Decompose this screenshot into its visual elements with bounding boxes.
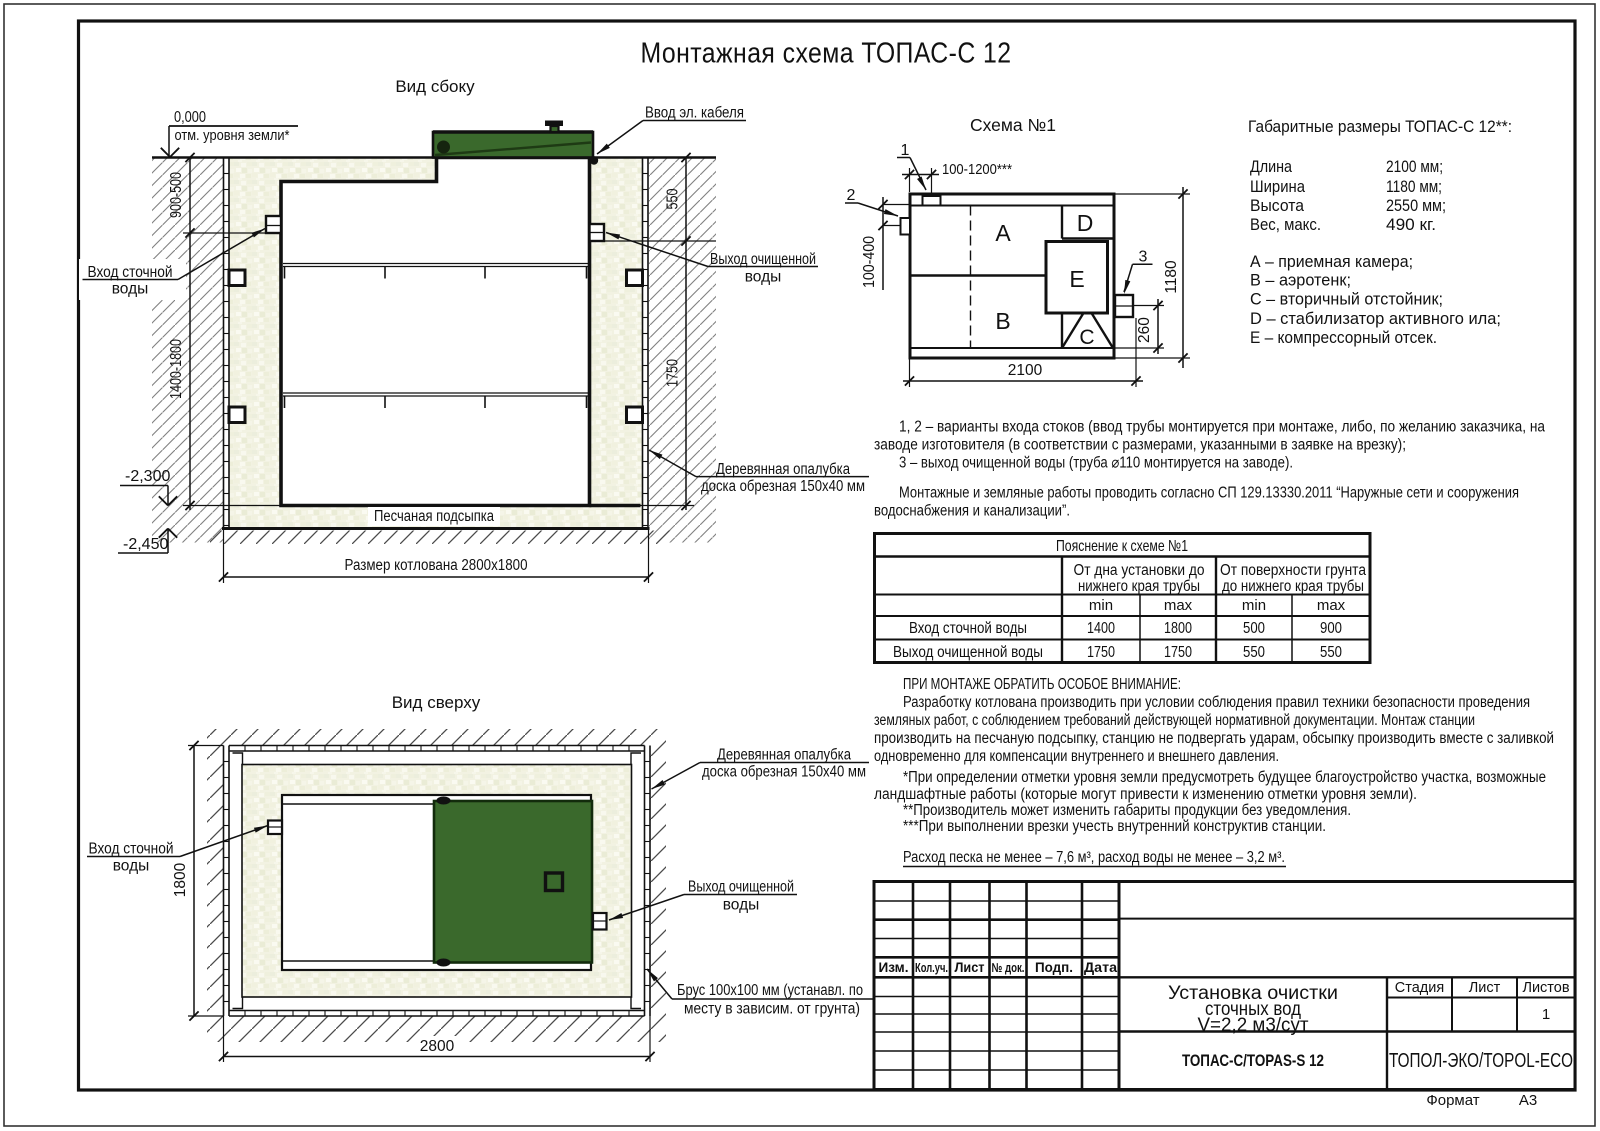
svg-text:Подп.: Подп. [1035, 960, 1073, 975]
svg-text:водоснабжения и канализации”.: водоснабжения и канализации”. [874, 503, 1070, 520]
svg-text:min: min [1242, 597, 1266, 614]
svg-text:воды: воды [723, 897, 760, 914]
svg-text:земляных работ, с соблюдением: земляных работ, с соблюдением требований… [874, 712, 1475, 729]
svg-text:Схема №1: Схема №1 [970, 115, 1056, 135]
svg-text:1, 2 – варианты входа стоков: 1, 2 – варианты входа стоков (ввод трубы… [899, 419, 1545, 436]
svg-text:900-500: 900-500 [168, 172, 185, 218]
svg-text:В – аэротенк;: В – аэротенк; [1250, 271, 1351, 290]
svg-text:E: E [1069, 266, 1084, 292]
svg-text:max: max [1164, 597, 1193, 614]
svg-text:490 кг.: 490 кг. [1386, 215, 1436, 234]
svg-text:Брус 100х100 мм (устанавл. по: Брус 100х100 мм (устанавл. по [677, 982, 863, 999]
svg-text:производить на песчаную подсып: производить на песчаную подсыпку, станци… [874, 730, 1554, 747]
svg-text:Ввод эл. кабеля: Ввод эл. кабеля [645, 105, 744, 122]
svg-text:500: 500 [1243, 620, 1265, 637]
svg-text:ПРИ МОНТАЖЕ ОБРАТИТЬ ОСОБОЕ ВН: ПРИ МОНТАЖЕ ОБРАТИТЬ ОСОБОЕ ВНИМАНИЕ: [903, 676, 1181, 693]
svg-text:Размер котлована 2800х1800: Размер котлована 2800х1800 [345, 557, 528, 574]
svg-text:260: 260 [1136, 317, 1153, 343]
svg-text:Песчаная подсыпка: Песчаная подсыпка [374, 508, 494, 525]
svg-text:Вход сточной: Вход сточной [89, 841, 174, 858]
svg-text:воды: воды [112, 281, 149, 298]
svg-text:550: 550 [1243, 644, 1265, 661]
svg-text:Дата: Дата [1084, 960, 1118, 975]
svg-text:1400: 1400 [1087, 620, 1115, 637]
svg-text:max: max [1317, 597, 1346, 614]
svg-text:Выход очищенной воды: Выход очищенной воды [893, 644, 1043, 661]
svg-text:100-1200***: 100-1200*** [942, 161, 1012, 178]
svg-text:1800: 1800 [1164, 620, 1192, 637]
svg-text:Высота: Высота [1250, 196, 1304, 215]
svg-text:отм. уровня земли*: отм. уровня земли* [175, 127, 290, 144]
svg-text:1: 1 [1542, 1006, 1550, 1023]
svg-text:D – стабилизатор активного ила: D – стабилизатор активного ила; [1250, 309, 1501, 328]
svg-text:одновременно для компенсации в: одновременно для компенсации внутреннего… [874, 748, 1279, 765]
svg-text:доска обрезная 150х40 мм: доска обрезная 150х40 мм [701, 478, 865, 495]
svg-text:А3: А3 [1519, 1092, 1537, 1109]
svg-text:Монтажная схема ТОПАС-С 12: Монтажная схема ТОПАС-С 12 [641, 38, 1012, 70]
svg-text:1: 1 [901, 142, 910, 159]
svg-text:до нижнего края трубы: до нижнего края трубы [1222, 578, 1364, 595]
svg-text:1750: 1750 [665, 359, 682, 387]
svg-text:550: 550 [665, 188, 682, 209]
svg-text:Габаритные размеры ТОПАС-С 12*: Габаритные размеры ТОПАС-С 12**: [1248, 117, 1512, 136]
svg-text:1180 мм;: 1180 мм; [1386, 177, 1442, 196]
svg-text:Деревянная опалубка: Деревянная опалубка [717, 747, 851, 764]
svg-text:Выход очищенной: Выход очищенной [688, 879, 794, 896]
svg-text:1750: 1750 [1087, 644, 1115, 661]
svg-text:**Производитель может изменить: **Производитель может изменить габариты … [903, 802, 1351, 819]
svg-text:B: B [995, 308, 1010, 334]
svg-text:V=2,2 м3/сут: V=2,2 м3/сут [1198, 1015, 1309, 1036]
svg-text:2100 мм;: 2100 мм; [1386, 157, 1443, 176]
svg-text:Е – компрессорный отсек.: Е – компрессорный отсек. [1250, 328, 1437, 347]
svg-text:ТОПОЛ-ЭКО/TOPOL-ECO: ТОПОЛ-ЭКО/TOPOL-ECO [1389, 1050, 1573, 1072]
svg-text:№ док.: № док. [992, 960, 1025, 975]
svg-text:Пояснение к схеме №1: Пояснение к схеме №1 [1056, 538, 1188, 555]
svg-text:550: 550 [1320, 644, 1342, 661]
svg-text:Лист: Лист [1469, 980, 1501, 996]
svg-text:А – приемная камера;: А – приемная камера; [1250, 252, 1413, 271]
svg-text:D: D [1077, 210, 1094, 236]
svg-text:Вес, макс.: Вес, макс. [1250, 215, 1321, 234]
svg-text:нижнего края трубы: нижнего края трубы [1078, 578, 1200, 595]
svg-text:Выход очищенной: Выход очищенной [710, 251, 816, 268]
svg-text:воды: воды [113, 858, 150, 875]
svg-text:Монтажные и земляные работы пр: Монтажные и земляные работы проводить со… [899, 485, 1519, 502]
svg-text:Разработку котлована производи: Разработку котлована производить при усл… [903, 694, 1530, 711]
svg-text:***При выполнении врезки учест: ***При выполнении врезки учесть внутренн… [903, 818, 1326, 835]
svg-text:От поверхности грунта: От поверхности грунта [1220, 562, 1366, 579]
svg-text:A: A [995, 220, 1011, 246]
svg-text:Расход песка не менее – 7,6 м³: Расход песка не менее – 7,6 м³, расход в… [903, 849, 1285, 866]
svg-text:-2,450: -2,450 [123, 536, 168, 553]
svg-text:1750: 1750 [1164, 644, 1192, 661]
svg-text:месту в зависим. от грунта): месту в зависим. от грунта) [684, 1001, 860, 1018]
svg-text:1800: 1800 [172, 862, 189, 897]
svg-text:2550 мм;: 2550 мм; [1386, 196, 1446, 215]
svg-text:От дна установки до: От дна установки до [1074, 562, 1205, 579]
svg-text:Стадия: Стадия [1395, 980, 1444, 996]
svg-text:Вид сбоку: Вид сбоку [395, 77, 475, 96]
svg-text:воды: воды [745, 269, 782, 286]
svg-text:*При определении отметки уровн: *При определении отметки уровня земли пр… [903, 769, 1546, 786]
svg-text:3 – выход очищенной воды (труб: 3 – выход очищенной воды (труба ⌀110 мон… [899, 455, 1293, 472]
svg-text:min: min [1089, 597, 1113, 614]
svg-text:С – вторичный отстойник;: С – вторичный отстойник; [1250, 290, 1443, 309]
svg-text:ландшафтные работы (которые мо: ландшафтные работы (которые могут привес… [874, 786, 1417, 803]
svg-text:Вход сточной воды: Вход сточной воды [909, 620, 1027, 637]
svg-text:Лист: Лист [955, 960, 985, 975]
svg-text:заводе изготовителя (в соответ: заводе изготовителя (в соответствии с ра… [874, 437, 1406, 454]
svg-text:C: C [1079, 326, 1094, 349]
svg-text:ТОПАС-С/TOPAS-S 12: ТОПАС-С/TOPAS-S 12 [1182, 1052, 1324, 1070]
svg-text:-2,300: -2,300 [125, 468, 170, 485]
svg-text:Кол.уч.: Кол.уч. [915, 961, 948, 975]
svg-text:Формат: Формат [1426, 1092, 1479, 1109]
svg-text:3: 3 [1139, 249, 1148, 266]
svg-text:900: 900 [1320, 620, 1342, 637]
svg-text:Деревянная опалубка: Деревянная опалубка [716, 461, 850, 478]
svg-text:Вид сверху: Вид сверху [392, 693, 481, 712]
svg-text:2: 2 [847, 187, 856, 204]
svg-text:1180: 1180 [1163, 260, 1180, 294]
svg-text:Ширина: Ширина [1250, 177, 1305, 196]
svg-text:2100: 2100 [1008, 362, 1043, 379]
svg-text:1400-1800: 1400-1800 [168, 339, 185, 399]
svg-text:100-400: 100-400 [861, 236, 878, 288]
svg-text:доска обрезная 150х40 мм: доска обрезная 150х40 мм [702, 764, 866, 781]
svg-text:0,000: 0,000 [174, 109, 206, 126]
svg-text:Длина: Длина [1250, 157, 1292, 176]
svg-text:2800: 2800 [420, 1038, 455, 1055]
svg-text:Вход сточной: Вход сточной [88, 264, 173, 281]
svg-text:Листов: Листов [1522, 980, 1569, 996]
svg-text:Изм.: Изм. [879, 960, 909, 975]
